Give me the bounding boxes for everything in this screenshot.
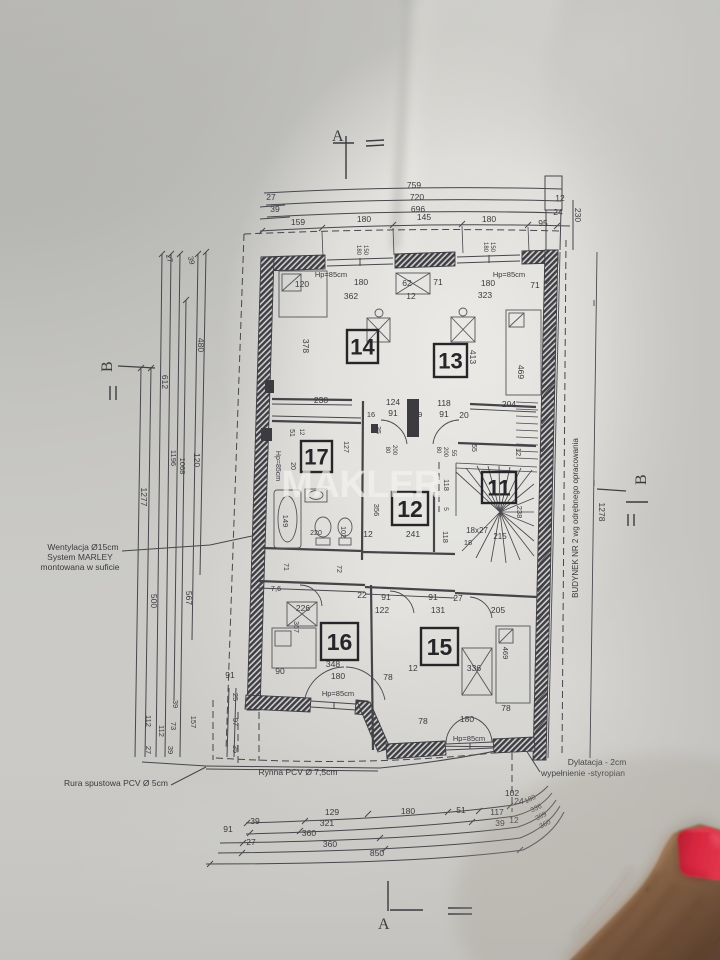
svg-text:Hp=85cm: Hp=85cm bbox=[274, 451, 281, 481]
svg-text:Rura spustowa PCV Ø 5cm: Rura spustowa PCV Ø 5cm bbox=[64, 778, 168, 788]
svg-text:78: 78 bbox=[501, 703, 511, 713]
svg-text:226: 226 bbox=[296, 603, 310, 613]
svg-text:5: 5 bbox=[442, 507, 449, 511]
svg-text:118: 118 bbox=[441, 531, 450, 543]
svg-text:469: 469 bbox=[516, 365, 526, 379]
svg-text:348: 348 bbox=[326, 659, 340, 669]
svg-text:91: 91 bbox=[428, 592, 438, 602]
svg-text:Hp=85cm: Hp=85cm bbox=[493, 270, 525, 279]
svg-text:180: 180 bbox=[401, 806, 415, 816]
svg-text:367: 367 bbox=[292, 621, 299, 633]
svg-text:B: B bbox=[99, 361, 116, 372]
svg-text:131: 131 bbox=[431, 605, 445, 615]
svg-text:145: 145 bbox=[417, 212, 431, 222]
svg-text:91: 91 bbox=[388, 408, 398, 418]
svg-text:16: 16 bbox=[367, 410, 375, 419]
svg-text:323: 323 bbox=[478, 290, 492, 300]
svg-text:39: 39 bbox=[270, 204, 280, 214]
svg-text:91: 91 bbox=[439, 409, 449, 419]
svg-text:B: B bbox=[633, 474, 650, 485]
svg-text:129: 129 bbox=[325, 807, 339, 817]
svg-text:1278: 1278 bbox=[597, 503, 607, 522]
svg-text:157: 157 bbox=[189, 716, 198, 729]
svg-text:149: 149 bbox=[281, 515, 290, 528]
svg-text:17,9: 17,9 bbox=[408, 410, 423, 419]
svg-text:362: 362 bbox=[344, 291, 358, 301]
svg-text:27: 27 bbox=[266, 192, 276, 202]
svg-text:16: 16 bbox=[327, 629, 353, 655]
svg-text:12: 12 bbox=[406, 291, 416, 301]
svg-text:200: 200 bbox=[391, 445, 397, 456]
svg-text:241: 241 bbox=[406, 529, 420, 539]
svg-text:480: 480 bbox=[196, 338, 206, 352]
svg-text:567: 567 bbox=[184, 591, 194, 605]
svg-text:720: 720 bbox=[410, 192, 424, 202]
svg-text:378: 378 bbox=[301, 339, 311, 353]
svg-text:12: 12 bbox=[555, 193, 565, 203]
svg-text:20: 20 bbox=[459, 410, 469, 420]
svg-text:71: 71 bbox=[433, 277, 443, 287]
svg-text:1277: 1277 bbox=[139, 488, 149, 507]
svg-text:159: 159 bbox=[291, 217, 305, 227]
svg-text:55: 55 bbox=[450, 450, 456, 457]
svg-text:95: 95 bbox=[538, 218, 548, 228]
svg-text:Wentylacja Ø15cm: Wentylacja Ø15cm bbox=[47, 542, 118, 552]
svg-text:220: 220 bbox=[310, 530, 322, 537]
svg-text:51: 51 bbox=[288, 429, 295, 437]
svg-text:80: 80 bbox=[384, 447, 390, 454]
svg-text:18: 18 bbox=[464, 538, 472, 547]
svg-text:180: 180 bbox=[460, 714, 474, 724]
svg-text:112: 112 bbox=[144, 715, 153, 727]
svg-text:204: 204 bbox=[502, 399, 516, 409]
svg-text:1196: 1196 bbox=[169, 450, 178, 466]
svg-text:180: 180 bbox=[331, 671, 345, 681]
svg-text:Rynna PCV Ø 7,5cm: Rynna PCV Ø 7,5cm bbox=[259, 767, 338, 777]
svg-text:612: 612 bbox=[160, 375, 170, 389]
svg-text:360: 360 bbox=[302, 828, 316, 838]
svg-text:71: 71 bbox=[282, 563, 289, 571]
svg-text:39: 39 bbox=[171, 700, 180, 708]
svg-text:112: 112 bbox=[157, 725, 166, 737]
svg-text:180: 180 bbox=[482, 242, 488, 253]
svg-text:205: 205 bbox=[491, 605, 505, 615]
svg-text:14: 14 bbox=[350, 334, 375, 359]
svg-text:91: 91 bbox=[381, 592, 391, 602]
svg-text:122: 122 bbox=[375, 605, 389, 615]
svg-text:15: 15 bbox=[427, 634, 453, 660]
svg-text:27: 27 bbox=[453, 593, 463, 603]
svg-text:71: 71 bbox=[530, 280, 540, 290]
svg-text:39: 39 bbox=[166, 746, 175, 754]
svg-text:215: 215 bbox=[493, 532, 507, 541]
svg-text:238: 238 bbox=[314, 395, 328, 405]
svg-text:127: 127 bbox=[342, 441, 349, 453]
svg-text:91: 91 bbox=[225, 670, 235, 680]
svg-text:12: 12 bbox=[408, 663, 418, 673]
svg-text:11: 11 bbox=[487, 475, 510, 500]
svg-text:238: 238 bbox=[515, 506, 524, 519]
svg-text:7,6: 7,6 bbox=[271, 584, 281, 593]
svg-text:35: 35 bbox=[231, 745, 240, 753]
svg-text:759: 759 bbox=[407, 180, 421, 190]
svg-text:150: 150 bbox=[489, 242, 495, 253]
svg-text:120: 120 bbox=[295, 279, 309, 289]
svg-text:124: 124 bbox=[386, 397, 400, 407]
svg-text:180: 180 bbox=[355, 245, 361, 256]
svg-text:200: 200 bbox=[442, 447, 448, 458]
svg-text:230: 230 bbox=[573, 208, 583, 222]
svg-text:A: A bbox=[378, 916, 390, 933]
svg-text:413: 413 bbox=[468, 350, 478, 364]
svg-text:montowana w suficie: montowana w suficie bbox=[41, 562, 120, 572]
svg-text:1068: 1068 bbox=[178, 458, 187, 475]
svg-text:150: 150 bbox=[362, 245, 368, 256]
svg-text:18x27: 18x27 bbox=[466, 526, 488, 535]
svg-text:102: 102 bbox=[339, 526, 346, 538]
svg-text:51: 51 bbox=[456, 805, 466, 815]
svg-text:System MARLEY: System MARLEY bbox=[47, 552, 113, 562]
svg-text:39: 39 bbox=[250, 816, 260, 826]
svg-text:35: 35 bbox=[374, 426, 381, 434]
svg-text:118: 118 bbox=[442, 479, 451, 491]
svg-text:850: 850 bbox=[370, 848, 384, 858]
svg-text:91: 91 bbox=[223, 824, 233, 834]
svg-text:78: 78 bbox=[383, 672, 393, 682]
svg-text:MAKLER: MAKLER bbox=[281, 464, 441, 506]
svg-text:90: 90 bbox=[275, 666, 285, 676]
svg-text:180: 180 bbox=[354, 277, 368, 287]
svg-text:469: 469 bbox=[501, 647, 510, 660]
svg-text:A: A bbox=[332, 128, 344, 145]
svg-text:180: 180 bbox=[357, 214, 371, 224]
svg-text:360: 360 bbox=[323, 839, 337, 849]
svg-text:Hp=85cm: Hp=85cm bbox=[315, 270, 347, 279]
svg-text:321: 321 bbox=[320, 818, 334, 828]
svg-text:55: 55 bbox=[470, 444, 477, 452]
svg-text:120: 120 bbox=[192, 453, 202, 467]
svg-text:12: 12 bbox=[514, 448, 523, 456]
svg-text:62: 62 bbox=[402, 278, 412, 288]
svg-text:97: 97 bbox=[231, 718, 240, 726]
svg-text:72: 72 bbox=[335, 565, 342, 573]
svg-text:27: 27 bbox=[144, 746, 153, 754]
svg-text:80: 80 bbox=[435, 447, 441, 454]
svg-text:118: 118 bbox=[437, 398, 451, 408]
svg-text:13: 13 bbox=[438, 348, 462, 373]
svg-text:73: 73 bbox=[169, 722, 178, 730]
svg-text:Hp=85cm: Hp=85cm bbox=[322, 689, 354, 698]
svg-text:22: 22 bbox=[357, 590, 367, 600]
svg-text:180: 180 bbox=[482, 214, 496, 224]
svg-text:Hp=85cm: Hp=85cm bbox=[453, 734, 485, 743]
svg-text:27: 27 bbox=[246, 837, 256, 847]
svg-text:25: 25 bbox=[231, 693, 240, 701]
svg-text:24: 24 bbox=[553, 207, 563, 217]
svg-text:180: 180 bbox=[481, 278, 495, 288]
svg-text:12: 12 bbox=[298, 429, 304, 436]
svg-text:78: 78 bbox=[418, 716, 428, 726]
svg-text:336: 336 bbox=[467, 663, 481, 673]
svg-text:12: 12 bbox=[363, 529, 373, 539]
svg-text:BUDYNEK NR 2 wg odrębnego opra: BUDYNEK NR 2 wg odrębnego opracowania bbox=[571, 438, 580, 598]
svg-text:500: 500 bbox=[149, 594, 159, 608]
